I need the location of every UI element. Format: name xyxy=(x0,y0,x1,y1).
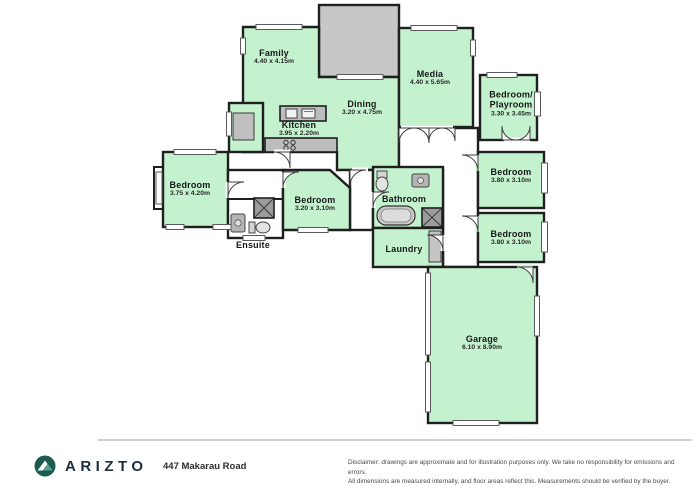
garage-area xyxy=(428,267,537,423)
brand-name: ARIZTO xyxy=(65,458,148,475)
playroom-area xyxy=(480,75,537,140)
media-room-area xyxy=(399,28,473,127)
arizto-mountain-logo-icon xyxy=(34,455,56,477)
bedroom-left-area xyxy=(163,152,228,227)
footer-divider xyxy=(98,439,692,441)
disclaimer-line-1: Disclaimer: drawings are approximate and… xyxy=(348,458,678,477)
floorplan-drawing xyxy=(0,0,700,500)
arizto-brand: ARIZTO xyxy=(34,455,148,477)
bedroom-right-lower-area xyxy=(478,213,544,262)
property-address: 447 Makarau Road xyxy=(163,461,246,472)
disclaimer-line-2: All dimensions are measured internally, … xyxy=(348,477,678,487)
pantry-cupboard xyxy=(233,113,254,140)
bedroom-right-upper-area xyxy=(478,152,544,208)
patio-void-area xyxy=(319,5,399,77)
bedroom-mid-area xyxy=(283,170,350,230)
disclaimer-text: Disclaimer: drawings are approximate and… xyxy=(348,458,678,487)
floorplan-page: Family 4.40 x 4.15m Media 4.40 x 5.65m B… xyxy=(0,0,700,500)
hallway-west-area xyxy=(350,170,373,230)
